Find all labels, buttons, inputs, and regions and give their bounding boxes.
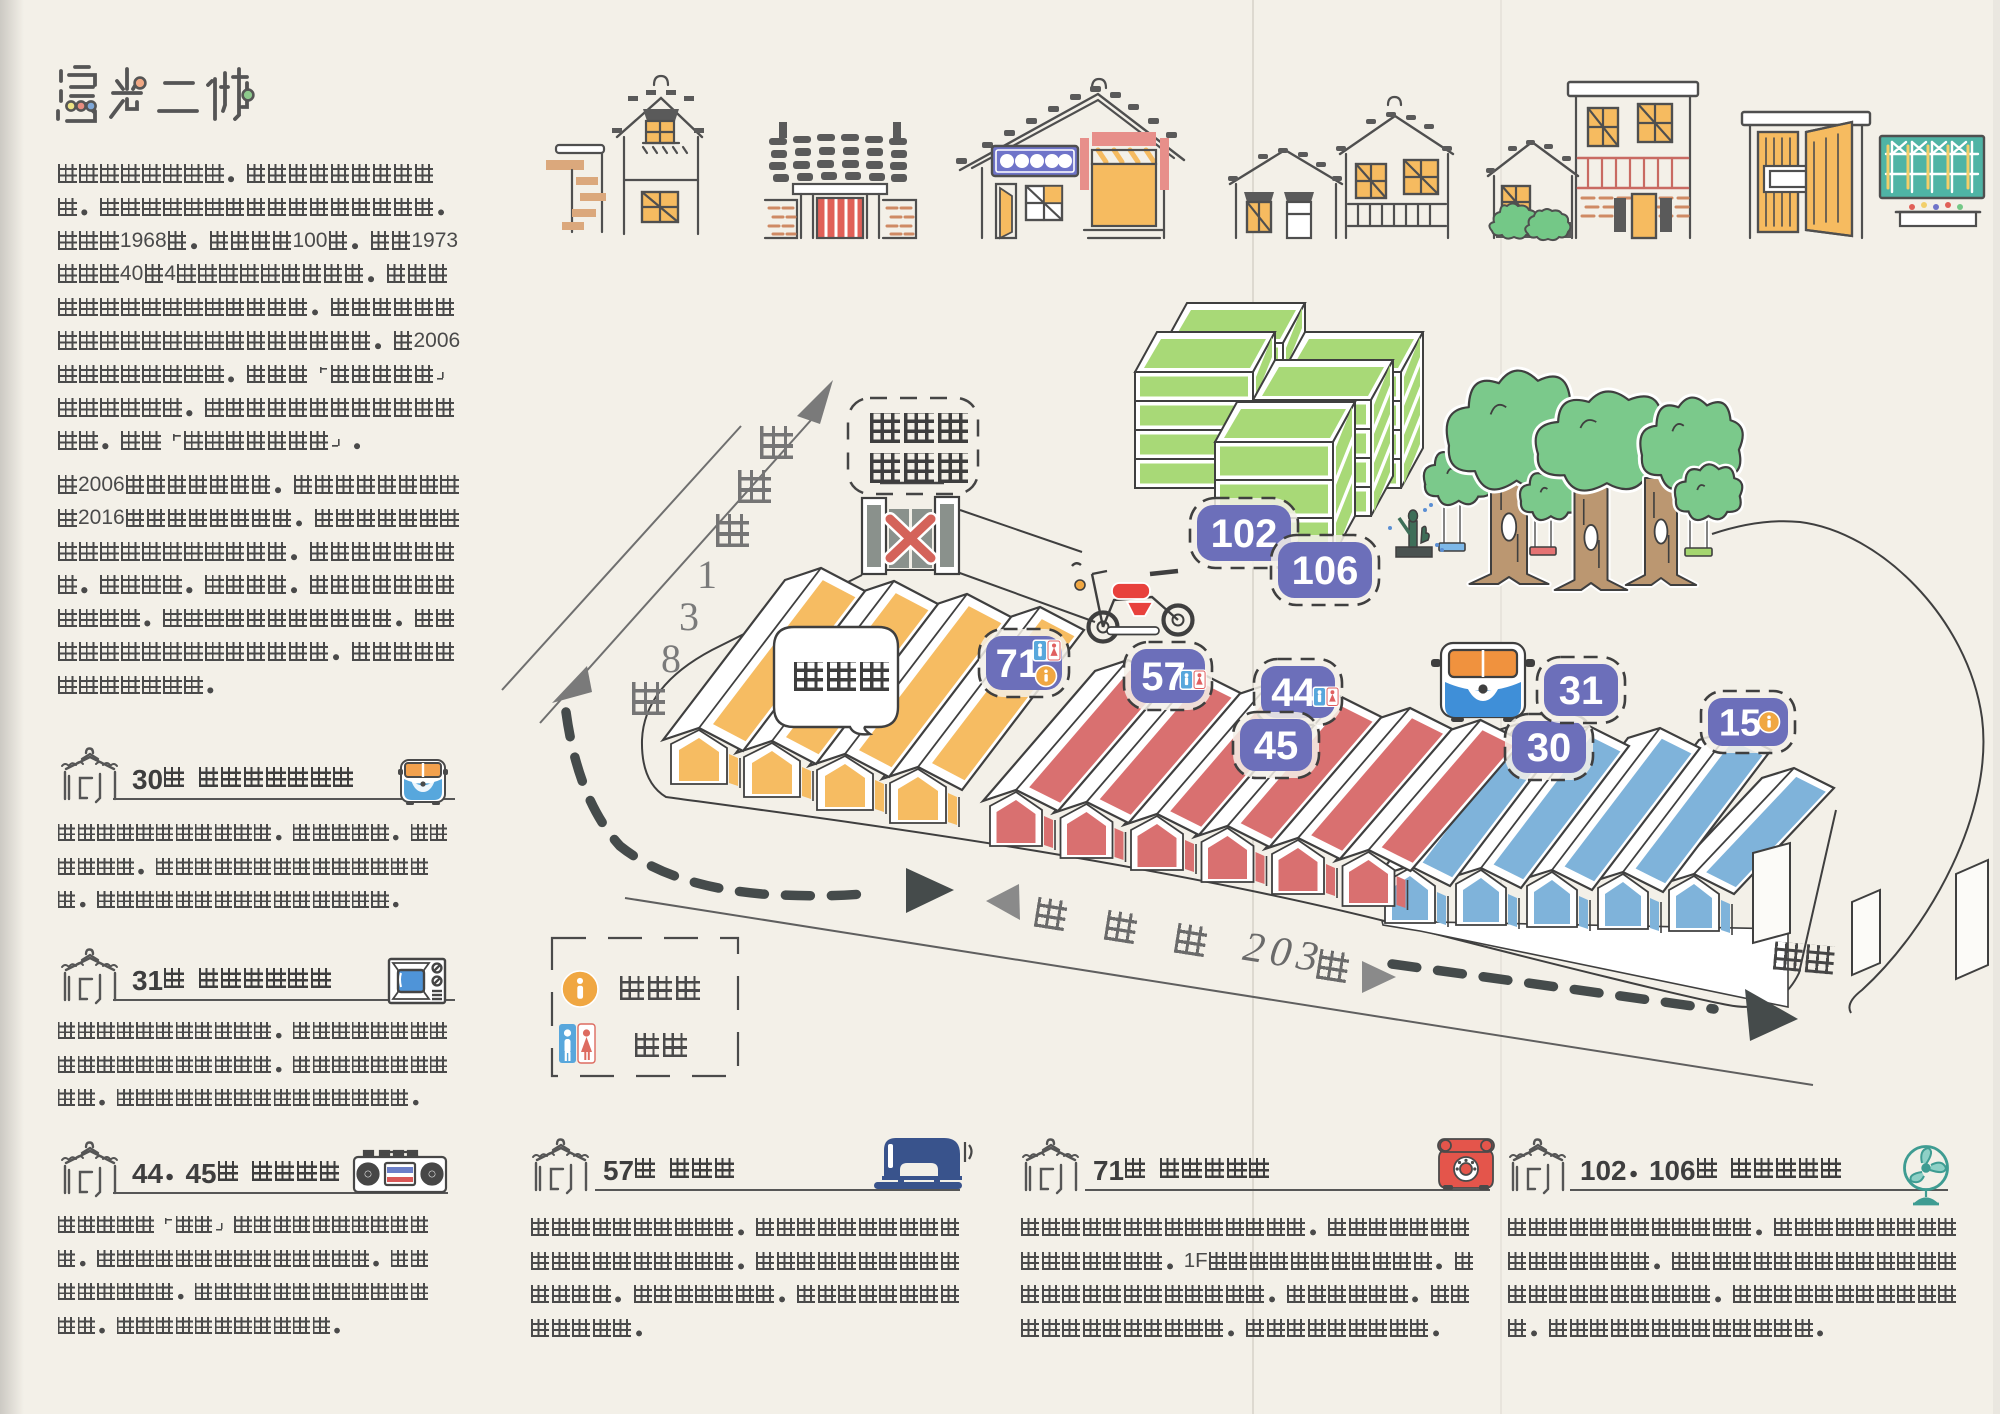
svg-text:30: 30	[1527, 726, 1572, 770]
svg-text:106: 106	[1292, 549, 1359, 593]
svg-text:44: 44	[1271, 671, 1316, 715]
svg-text:31: 31	[1559, 669, 1604, 713]
svg-text:102: 102	[1211, 512, 1278, 556]
svg-text:15: 15	[1719, 702, 1761, 744]
svg-text:45: 45	[1254, 724, 1299, 768]
svg-text:57: 57	[1141, 655, 1186, 699]
